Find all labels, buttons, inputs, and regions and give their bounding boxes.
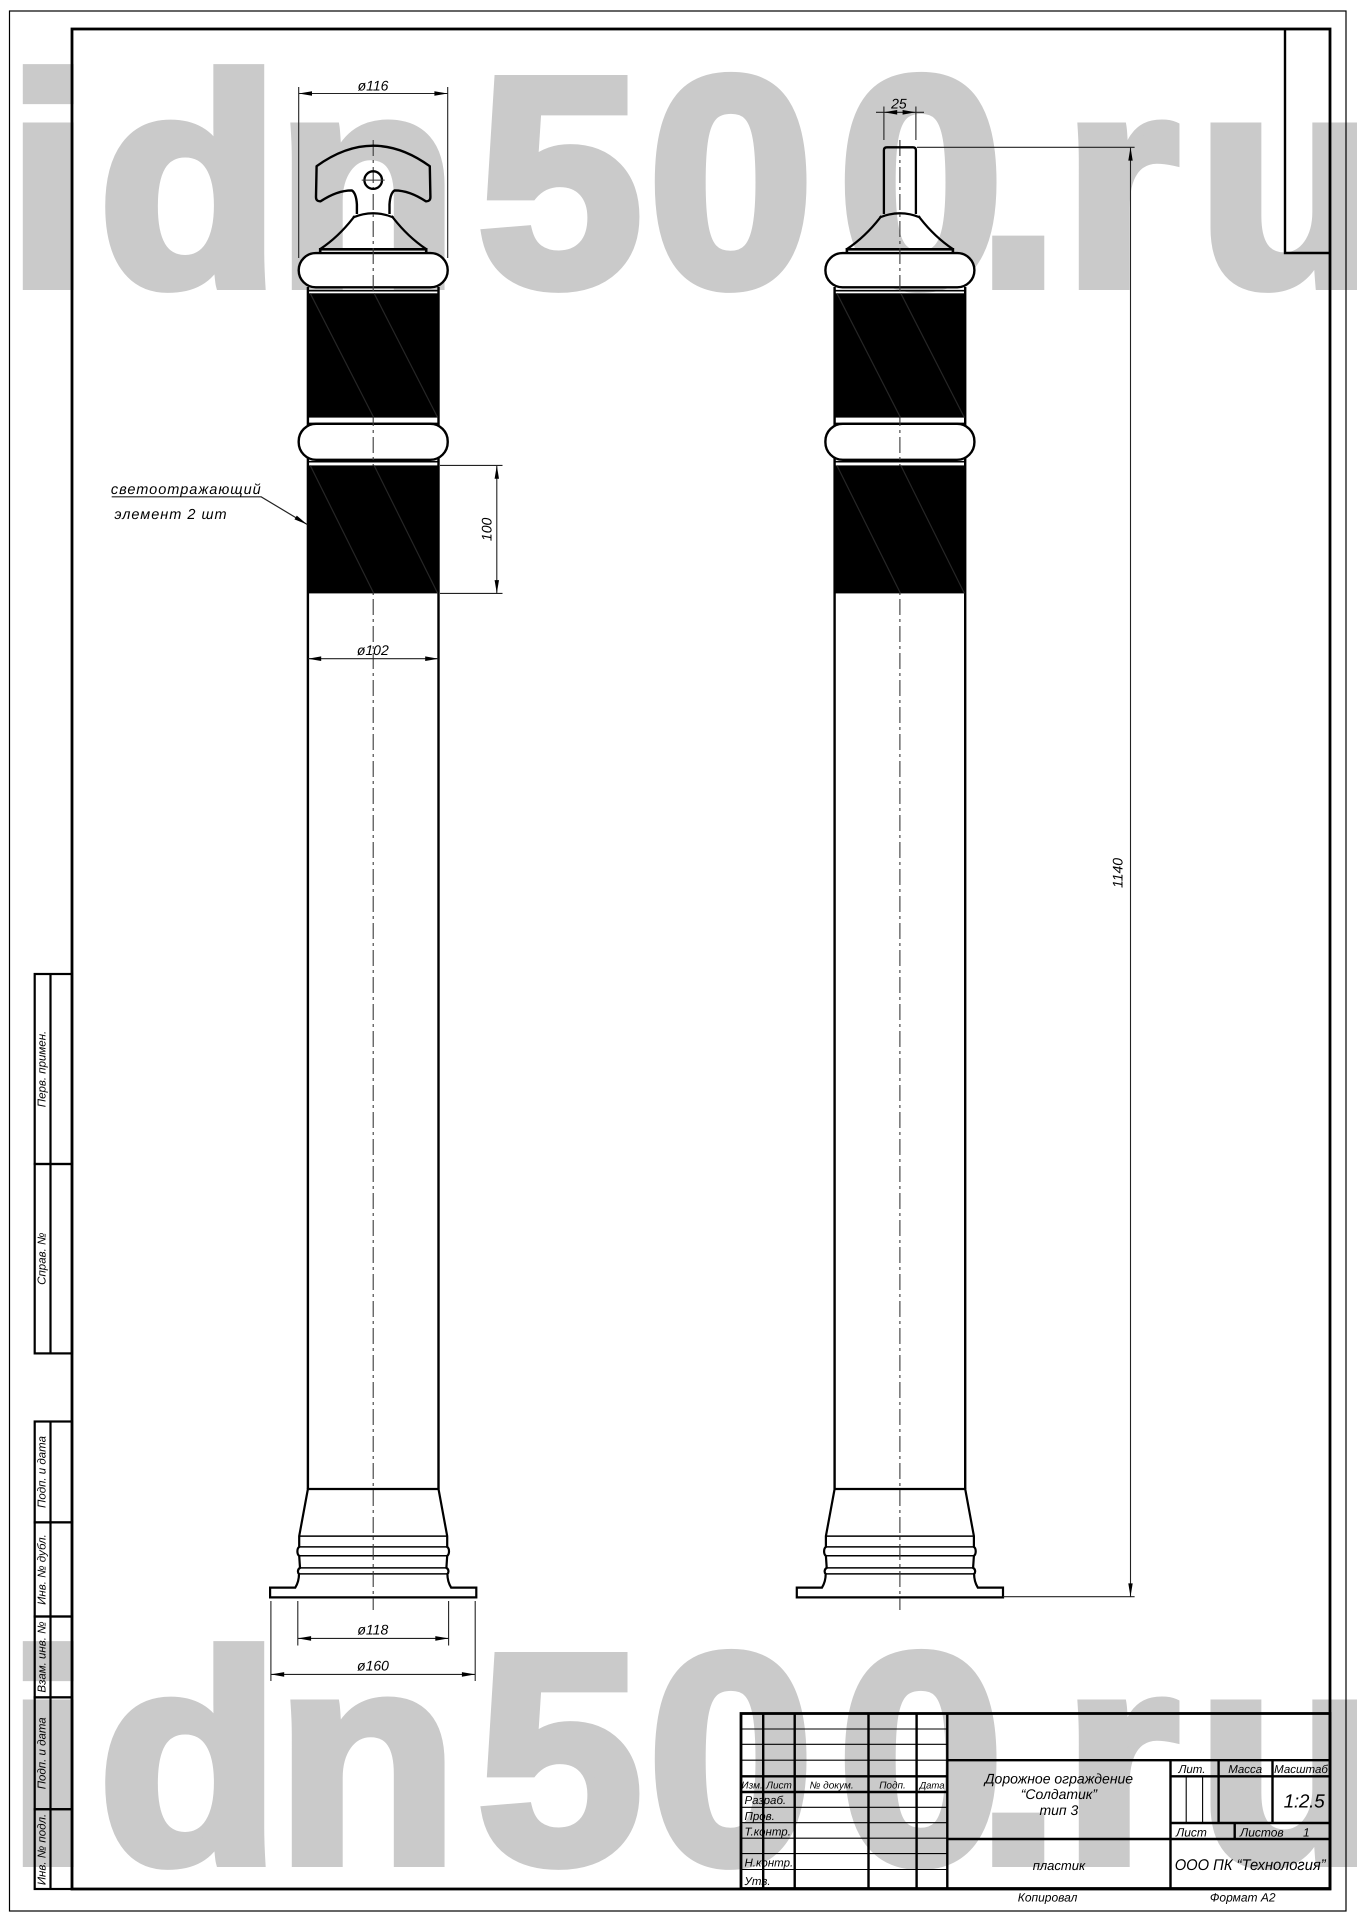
- svg-text:тип 3: тип 3: [1039, 1802, 1078, 1818]
- svg-text:ø118: ø118: [357, 1621, 388, 1637]
- svg-text:Дата: Дата: [918, 1781, 944, 1792]
- svg-text:Копировал: Копировал: [1018, 1891, 1078, 1905]
- svg-text:100: 100: [479, 518, 495, 542]
- svg-text:Лит.: Лит.: [1178, 1764, 1206, 1776]
- svg-text:idn500.ru: idn500.ru: [7, 1593, 1357, 1920]
- svg-text:Разраб.: Разраб.: [745, 1795, 787, 1807]
- svg-text:Инв. № подл.: Инв. № подл.: [36, 1814, 48, 1885]
- svg-text:ø116: ø116: [358, 78, 389, 94]
- svg-text:“Солдатик”: “Солдатик”: [1021, 1786, 1099, 1802]
- svg-text:Лист: Лист: [765, 1781, 792, 1792]
- svg-text:элемент 2 шт: элемент 2 шт: [114, 507, 227, 523]
- svg-text:Масса: Масса: [1228, 1764, 1262, 1776]
- svg-text:Пров.: Пров.: [745, 1811, 775, 1823]
- svg-text:Т.контр.: Т.контр.: [745, 1826, 791, 1838]
- svg-text:пластик: пластик: [1033, 1858, 1086, 1873]
- svg-text:1: 1: [1303, 1826, 1310, 1840]
- svg-text:Изм.: Изм.: [741, 1781, 762, 1792]
- svg-text:светоотражающий: светоотражающий: [111, 482, 262, 498]
- svg-text:ø102: ø102: [357, 642, 389, 658]
- svg-text:Взам. инв. №: Взам. инв. №: [36, 1621, 48, 1693]
- svg-text:Листов: Листов: [1239, 1826, 1284, 1840]
- svg-text:Инв. № дубл.: Инв. № дубл.: [36, 1534, 48, 1605]
- svg-text:Подп.: Подп.: [879, 1781, 906, 1792]
- svg-text:1:2.5: 1:2.5: [1284, 1792, 1325, 1813]
- svg-text:Лист: Лист: [1175, 1826, 1207, 1840]
- svg-text:25: 25: [890, 96, 907, 112]
- svg-text:Утв.: Утв.: [744, 1876, 771, 1888]
- svg-text:ø160: ø160: [357, 1657, 389, 1673]
- svg-text:Подп. и дата: Подп. и дата: [36, 1436, 48, 1508]
- svg-text:Масштаб: Масштаб: [1274, 1764, 1328, 1776]
- svg-text:idn500.ru: idn500.ru: [7, 16, 1357, 349]
- svg-text:ООО ПК “Технология”: ООО ПК “Технология”: [1175, 1857, 1327, 1874]
- svg-text:Дорожное ограждение: Дорожное ограждение: [983, 1770, 1134, 1786]
- svg-text:Перв. примен.: Перв. примен.: [36, 1031, 48, 1107]
- svg-text:1140: 1140: [1110, 858, 1126, 888]
- svg-text:Подп. и дата: Подп. и дата: [36, 1717, 48, 1789]
- svg-text:№ докум.: № докум.: [810, 1781, 854, 1792]
- svg-text:Формат А2: Формат А2: [1210, 1891, 1276, 1905]
- svg-text:Справ. №: Справ. №: [36, 1232, 48, 1285]
- svg-text:Н.контр.: Н.контр.: [745, 1857, 794, 1869]
